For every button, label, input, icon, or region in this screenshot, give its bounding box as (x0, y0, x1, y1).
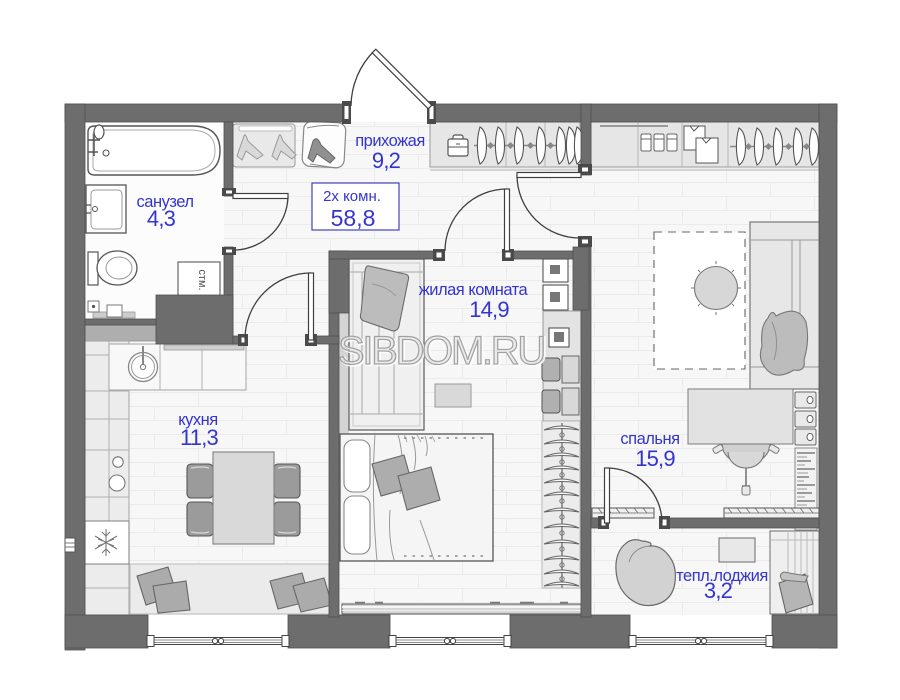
svg-text:стм.: стм. (196, 269, 208, 290)
svg-text:2х комн.: 2х комн. (323, 188, 381, 205)
svg-text:3,2: 3,2 (704, 578, 733, 603)
svg-text:SIBDOM.RU: SIBDOM.RU (338, 329, 544, 373)
svg-text:9,2: 9,2 (372, 148, 401, 173)
svg-text:58,8: 58,8 (331, 205, 376, 231)
svg-text:14,9: 14,9 (469, 297, 509, 322)
svg-text:11,3: 11,3 (180, 425, 219, 450)
svg-text:15,9: 15,9 (635, 446, 675, 471)
svg-text:4,3: 4,3 (147, 206, 176, 231)
